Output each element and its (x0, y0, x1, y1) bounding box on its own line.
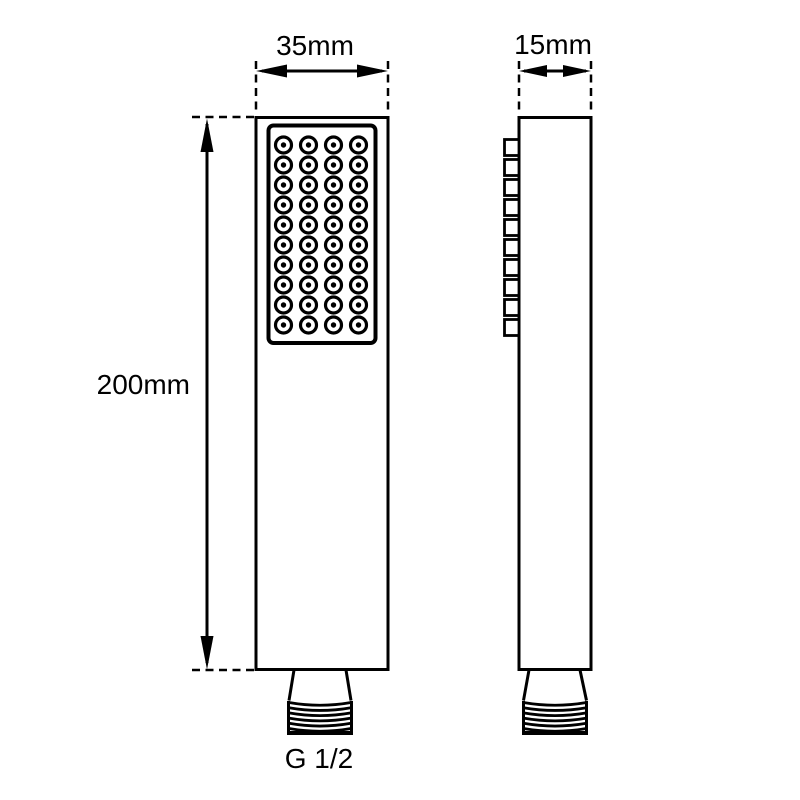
side-nozzle-square (505, 280, 520, 296)
side-thread (522, 701, 588, 733)
thread-ridge-line (524, 718, 587, 721)
side-nozzle-square (505, 240, 520, 256)
depth-dimension: 15mm (514, 29, 592, 113)
nozzle-dot (356, 242, 361, 247)
nozzle-dot (306, 202, 311, 207)
thread-ridge-line (289, 718, 351, 721)
nozzle-dot (331, 202, 336, 207)
side-nozzle-squares (505, 140, 520, 336)
height-arrowhead-top (201, 119, 214, 153)
height-label: 200mm (97, 369, 190, 400)
side-nozzle-square (505, 320, 520, 336)
width-dimension: 35mm (256, 30, 388, 113)
nozzle-dot (331, 142, 336, 147)
height-extension-lines (192, 117, 254, 670)
nozzle-dot (306, 322, 311, 327)
width-arrowhead-left (256, 65, 287, 78)
thread-ridge-line (289, 713, 351, 716)
nozzle-dot (306, 302, 311, 307)
nozzle-dot (306, 142, 311, 147)
side-connector-neck (524, 670, 587, 701)
thread-ridge-line (524, 703, 587, 706)
nozzle-dot (331, 182, 336, 187)
nozzle-dot (281, 222, 286, 227)
nozzle-dot (281, 262, 286, 267)
thread-ridge-line (524, 713, 587, 716)
side-nozzle-square (505, 180, 520, 196)
nozzle-dot (306, 262, 311, 267)
nozzle-dot (356, 142, 361, 147)
nozzle-dot (356, 202, 361, 207)
depth-arrowhead-left (519, 65, 547, 77)
nozzle-dot (331, 322, 336, 327)
thread-ridge-line (289, 703, 351, 706)
depth-arrowhead-right (563, 65, 591, 77)
front-connector-neck (289, 670, 351, 701)
nozzle-dot (281, 162, 286, 167)
thread-ridge-line (289, 708, 351, 711)
nozzle-dot (281, 202, 286, 207)
nozzle-dot (356, 162, 361, 167)
thread-ridge-line (289, 723, 351, 726)
side-nozzle-square (505, 160, 520, 176)
side-nozzle-square (505, 200, 520, 216)
nozzle-dot (306, 162, 311, 167)
height-arrowhead-bottom (201, 636, 214, 670)
nozzle-dot (356, 302, 361, 307)
nozzle-dot (306, 282, 311, 287)
height-dimension: 200mm (97, 117, 254, 670)
nozzle-dot (331, 302, 336, 307)
thread-ridge-line (524, 729, 587, 732)
width-label: 35mm (276, 30, 354, 61)
thread-ridge-line (524, 723, 587, 726)
nozzle-dot (331, 242, 336, 247)
side-view (505, 118, 592, 734)
nozzle-dot (281, 302, 286, 307)
technical-drawing-page: G 1/2 35mm 15mm (0, 0, 800, 800)
nozzle-dot (306, 182, 311, 187)
side-nozzle-square (505, 220, 520, 236)
side-thread-ridges (524, 703, 587, 732)
side-nozzle-square (505, 300, 520, 316)
thread-ridge-line (524, 708, 587, 711)
nozzle-dot (281, 282, 286, 287)
side-nozzle-square (505, 260, 520, 276)
front-thread-ridges (289, 703, 351, 732)
nozzle-dot (331, 282, 336, 287)
nozzle-dot (281, 242, 286, 247)
nozzle-dot (331, 162, 336, 167)
thread-size-label: G 1/2 (285, 743, 353, 774)
depth-label: 15mm (514, 29, 592, 60)
side-body-outline (519, 118, 591, 670)
width-arrowhead-right (357, 65, 388, 78)
nozzle-dot (281, 322, 286, 327)
thread-ridge-line (289, 729, 351, 732)
front-thread (287, 701, 353, 733)
nozzle-dot (356, 282, 361, 287)
nozzle-dot (356, 222, 361, 227)
nozzle-dot (306, 222, 311, 227)
nozzle-dot (356, 262, 361, 267)
nozzle-dot (331, 222, 336, 227)
front-view: G 1/2 (256, 118, 388, 775)
nozzle-dot (356, 322, 361, 327)
nozzle-dot (331, 262, 336, 267)
nozzle-dot (281, 182, 286, 187)
shower-handset-dimension-drawing: G 1/2 35mm 15mm (0, 0, 800, 800)
nozzle-dot (281, 142, 286, 147)
side-nozzle-square (505, 140, 520, 156)
nozzle-dot (306, 242, 311, 247)
nozzle-dot (356, 182, 361, 187)
